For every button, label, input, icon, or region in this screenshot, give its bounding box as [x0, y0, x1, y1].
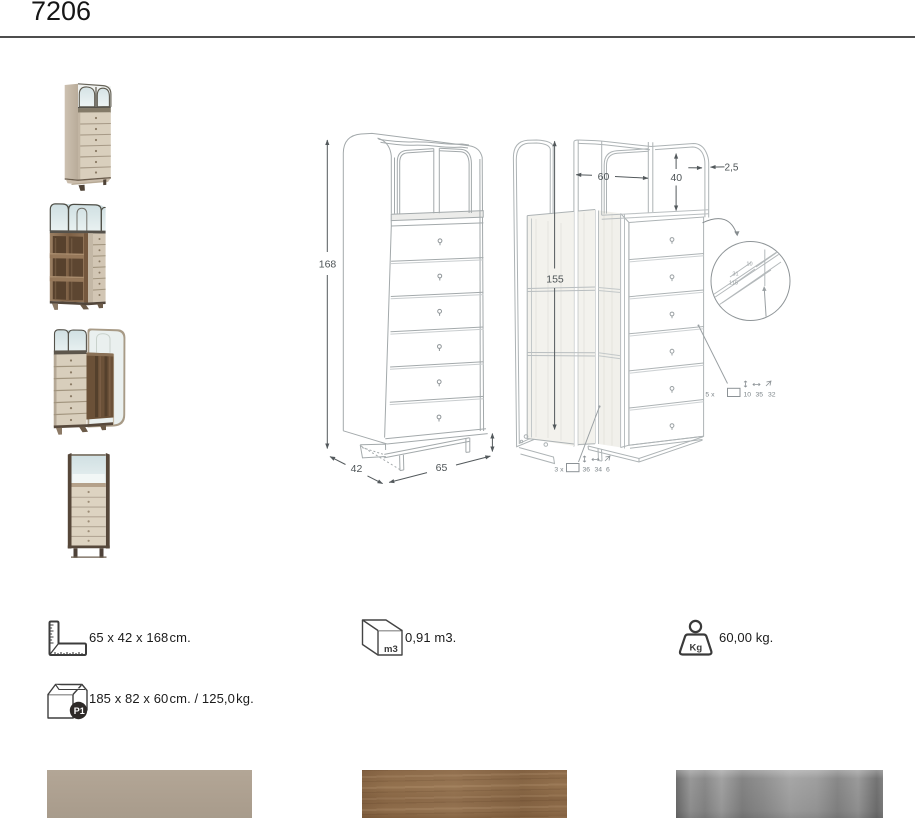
svg-text:6: 6 — [606, 467, 610, 474]
svg-text:3 x: 3 x — [554, 467, 564, 474]
svg-text:168: 168 — [319, 258, 337, 270]
svg-text:42: 42 — [351, 463, 363, 475]
svg-text:Kg: Kg — [690, 643, 703, 654]
svg-text:P1: P1 — [74, 706, 85, 716]
svg-text:m3: m3 — [384, 644, 398, 655]
svg-text:2,5: 2,5 — [725, 162, 739, 173]
svg-text:32: 32 — [768, 392, 776, 399]
svg-text:40: 40 — [670, 172, 682, 184]
svg-text:36: 36 — [583, 467, 591, 474]
svg-text:10: 10 — [746, 262, 752, 268]
svg-text:31: 31 — [732, 272, 738, 278]
svg-text:115: 115 — [729, 281, 738, 287]
svg-text:10: 10 — [744, 392, 752, 399]
svg-text:5 x: 5 x — [705, 392, 715, 399]
svg-text:34: 34 — [595, 467, 603, 474]
svg-text:155: 155 — [546, 273, 564, 285]
svg-text:65: 65 — [436, 462, 448, 474]
svg-text:60: 60 — [598, 171, 610, 183]
svg-text:35: 35 — [756, 392, 764, 399]
